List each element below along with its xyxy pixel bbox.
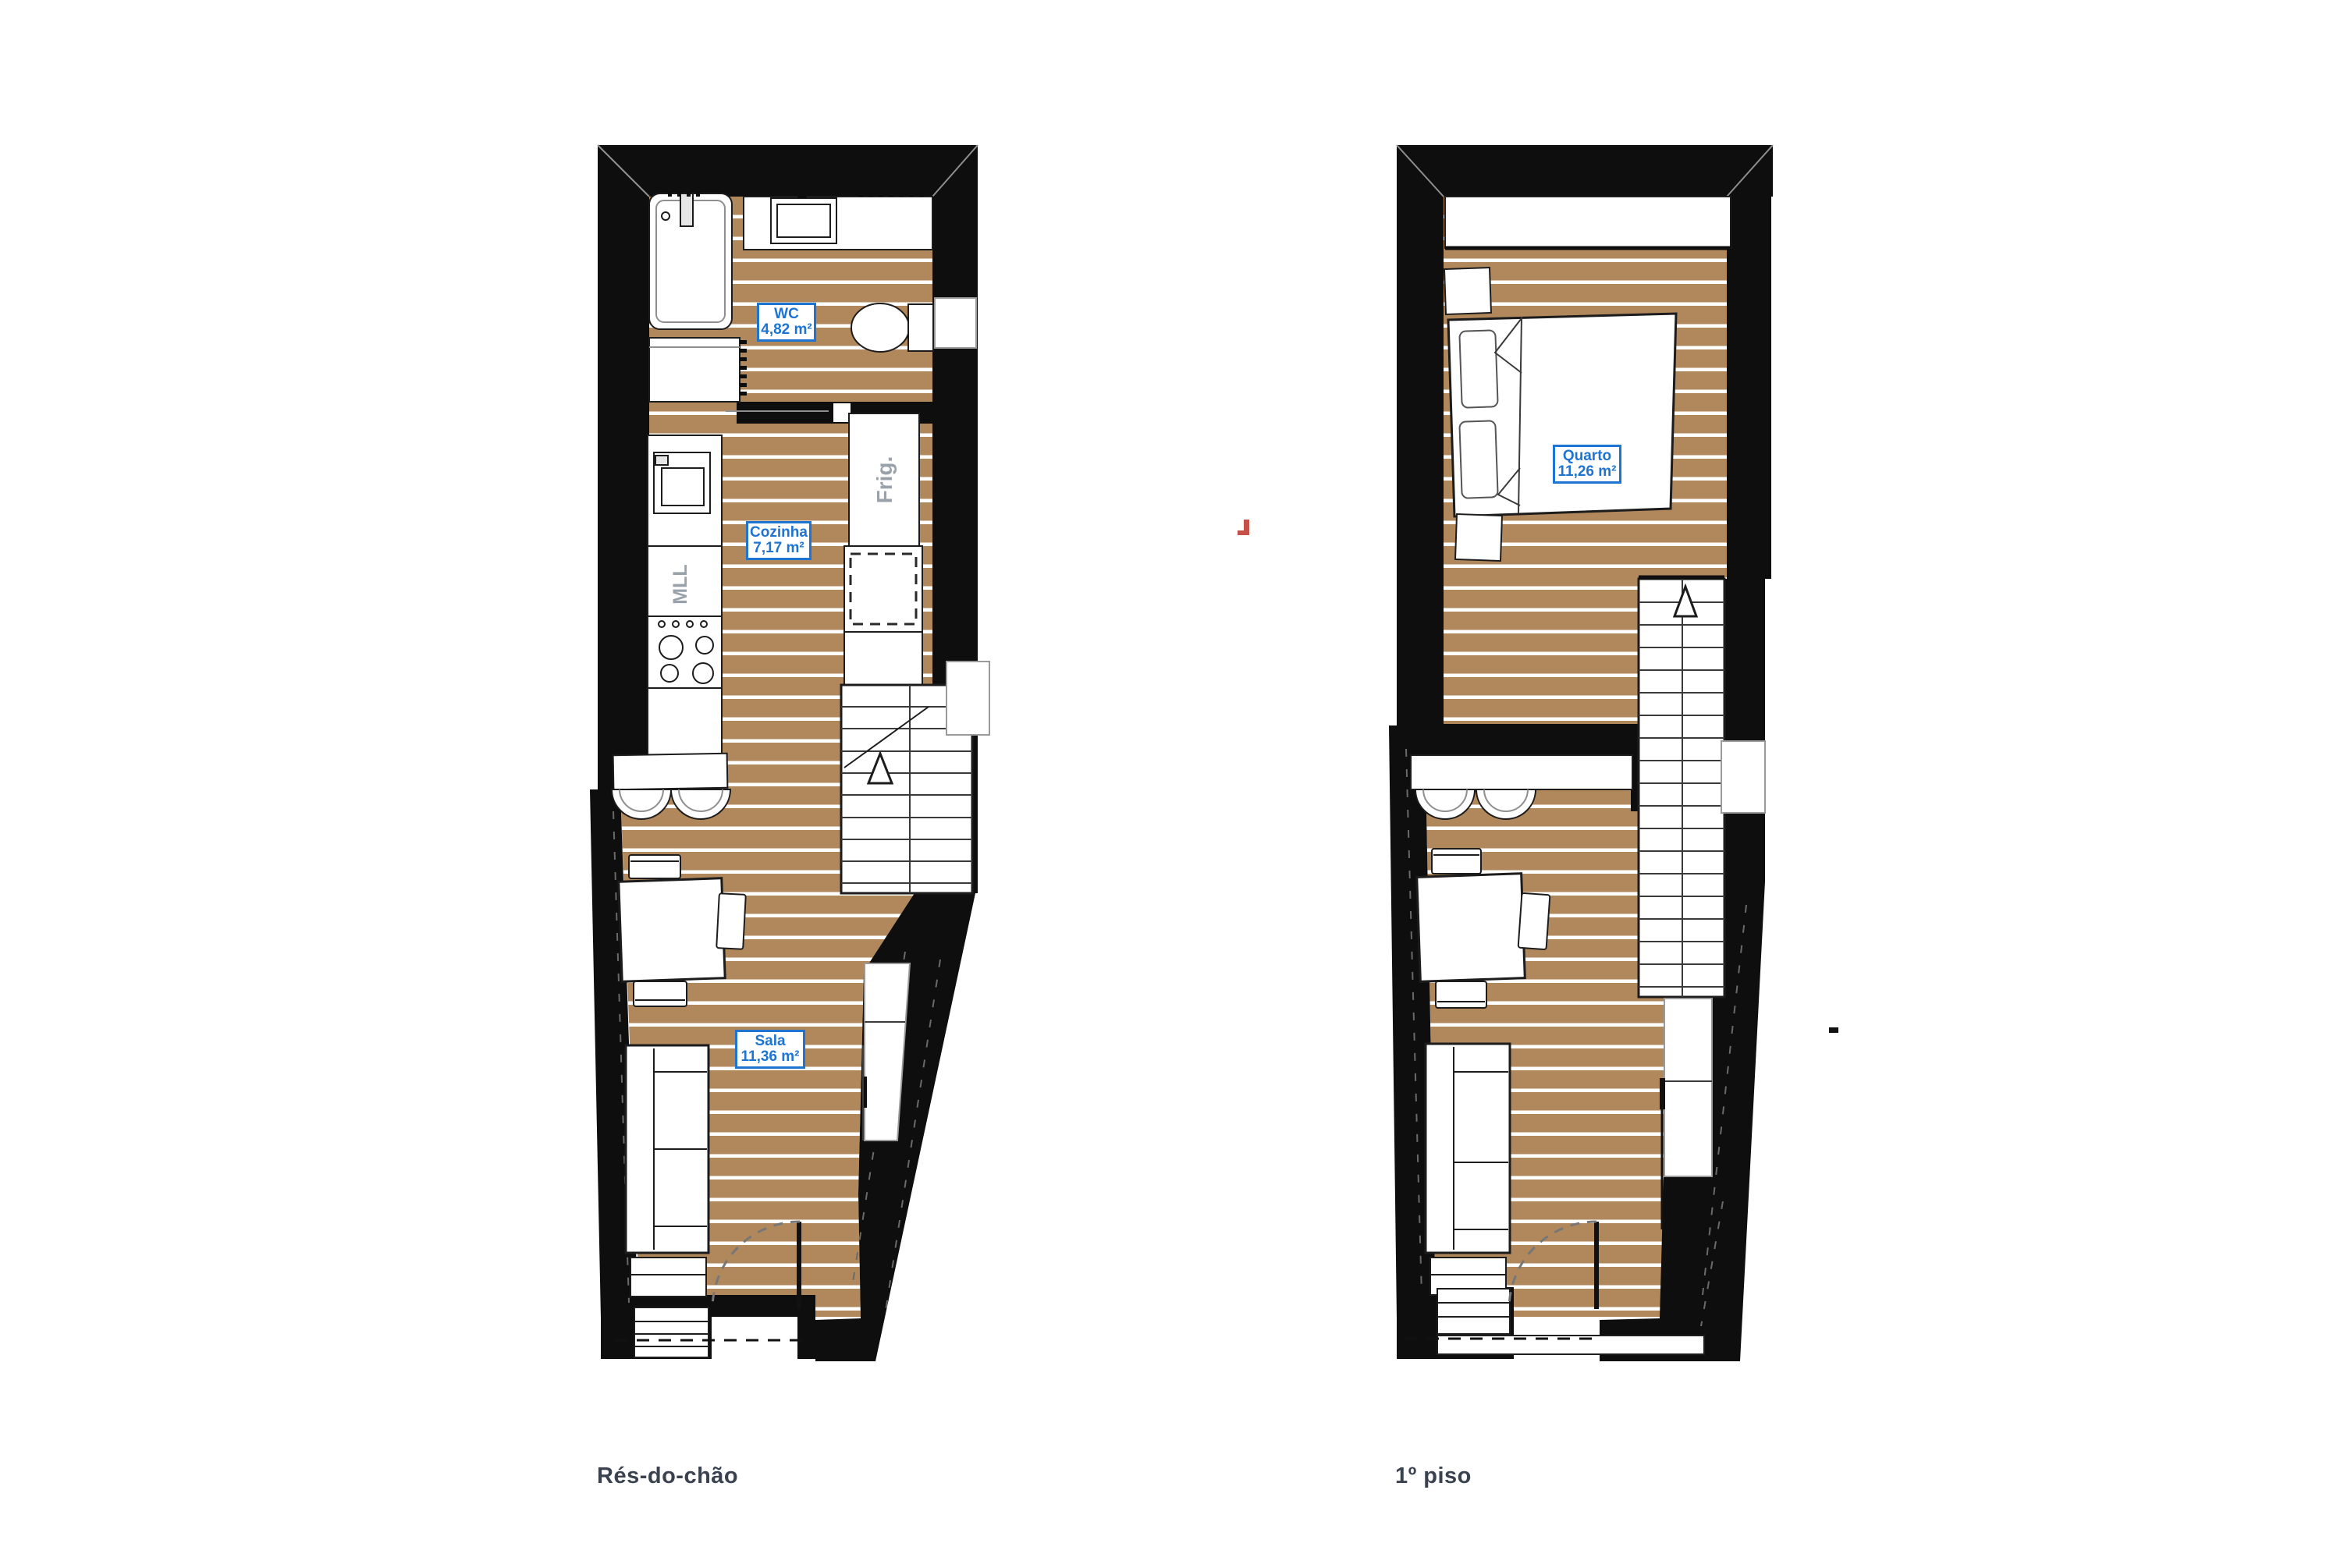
side-cabinet bbox=[630, 1258, 706, 1297]
black-annotation-mark bbox=[1829, 1027, 1838, 1033]
room-label-sala: Sala 11,36 m² bbox=[735, 1030, 805, 1069]
kitchen-sink-tap bbox=[655, 456, 668, 465]
dining-chair bbox=[634, 981, 687, 1006]
room-area: 11,36 m² bbox=[739, 1049, 801, 1065]
dining-chair bbox=[1436, 981, 1486, 1008]
counter-segment bbox=[844, 632, 922, 685]
nightstand bbox=[1444, 268, 1491, 314]
entry-steps bbox=[634, 1307, 709, 1357]
caption-first-floor: 1º piso bbox=[1395, 1463, 1472, 1489]
room-name: Sala bbox=[739, 1034, 801, 1049]
toilet-cistern bbox=[908, 304, 933, 351]
toilet-bowl bbox=[851, 303, 909, 352]
nightstand bbox=[1455, 514, 1502, 561]
bathtub-tap bbox=[680, 193, 693, 226]
wardrobe bbox=[1445, 197, 1731, 248]
room-name: Cozinha bbox=[750, 525, 808, 541]
room-label-wc: WC 4,82 m² bbox=[757, 303, 816, 342]
dining-chair bbox=[716, 893, 746, 949]
bar-counter bbox=[1411, 755, 1632, 789]
red-annotation-mark bbox=[1238, 520, 1249, 535]
room-area: 7,17 m² bbox=[750, 541, 808, 556]
room-label-cozinha: Cozinha 7,17 m² bbox=[746, 521, 812, 560]
entry-door-leaf bbox=[797, 1222, 801, 1309]
wc-door-opening bbox=[833, 403, 851, 422]
dishwasher-label: MLL bbox=[669, 557, 691, 612]
entry-steps bbox=[1437, 1289, 1510, 1334]
room-name: WC bbox=[761, 307, 812, 322]
dining-chair bbox=[1518, 893, 1550, 949]
entry-door-leaf bbox=[1594, 1222, 1599, 1309]
toilet-window-niche bbox=[935, 298, 976, 348]
stairwell-window-niche bbox=[1721, 741, 1765, 813]
room-name: Quarto bbox=[1557, 449, 1618, 464]
undercounter-appliance bbox=[844, 546, 922, 632]
bar-counter bbox=[613, 754, 728, 790]
caption-ground-floor: Rés-do-chão bbox=[597, 1463, 738, 1489]
entry-door-opening bbox=[712, 1317, 797, 1359]
room-label-quarto: Quarto 11,26 m² bbox=[1553, 445, 1621, 484]
stairwell-window-niche bbox=[946, 662, 989, 735]
dining-chair bbox=[1432, 849, 1481, 874]
plan-first-floor bbox=[1389, 145, 1773, 1361]
floorplan-page: WC 4,82 m² Cozinha 7,17 m² Sala 11,36 m²… bbox=[0, 0, 2344, 1568]
wc-sink-tap bbox=[797, 190, 807, 198]
sofa bbox=[1426, 1044, 1510, 1253]
room-area: 11,26 m² bbox=[1557, 464, 1618, 480]
room-area: 4,82 m² bbox=[761, 322, 812, 338]
floorplan-drawing bbox=[0, 0, 2344, 1568]
dining-table bbox=[1417, 874, 1525, 982]
dining-table bbox=[619, 878, 725, 982]
fridge-label: Frig. bbox=[872, 449, 896, 511]
dining-chair bbox=[629, 855, 680, 878]
pillow bbox=[1459, 420, 1497, 498]
pillow bbox=[1459, 330, 1497, 408]
sofa bbox=[626, 1045, 709, 1253]
